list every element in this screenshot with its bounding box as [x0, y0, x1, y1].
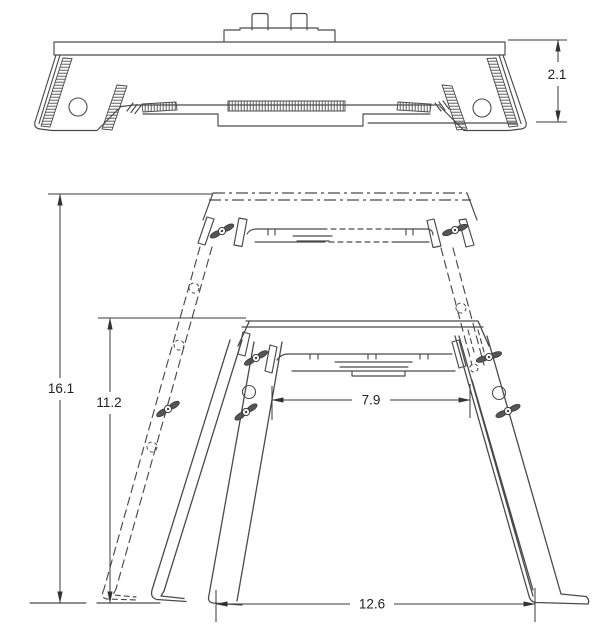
dim-label-folded-height: 2.1	[548, 67, 567, 82]
hinge-hole-right	[473, 99, 491, 117]
top-plate	[54, 42, 505, 55]
dim-label-base-span: 12.6	[359, 597, 385, 612]
top-step	[238, 321, 489, 346]
spring-mark-right	[435, 101, 449, 111]
dim-label-extended-height: 16.1	[48, 381, 74, 396]
dim-extended-height: 16.1	[48, 194, 212, 603]
technical-drawing-canvas: 2.1	[0, 0, 612, 640]
step-stool-drawing: 2.1	[0, 0, 612, 640]
lowered-position	[152, 321, 589, 605]
knurl-strip	[228, 101, 345, 111]
knurl-strip	[487, 58, 518, 127]
knurl-strip	[397, 102, 431, 112]
wing-nut-icon	[243, 348, 269, 367]
knurl-strip	[102, 85, 127, 130]
left-leg-channel	[209, 342, 283, 605]
wing-nut-icon	[441, 222, 468, 238]
phantom-top-edge	[209, 193, 471, 200]
step-bracket	[218, 114, 363, 126]
folded-profile-view: 2.1	[35, 14, 567, 131]
wing-nut-icon	[233, 401, 259, 422]
top-platform	[224, 28, 335, 42]
dim-inner-leg-span: 7.9	[272, 384, 470, 420]
dim-base-span: 12.6	[216, 588, 535, 622]
right-leg-channel	[455, 336, 589, 604]
phantom-left-leg	[104, 247, 200, 589]
lower-rail	[277, 354, 455, 376]
knurl-strip	[142, 102, 177, 112]
hinge-hole-left	[69, 98, 87, 116]
phantom-left-foot	[103, 589, 138, 600]
wing-nut-icon	[495, 402, 522, 420]
dim-label-lowered-height: 11.2	[96, 395, 121, 410]
rail-bracket-left	[238, 332, 277, 373]
side-elevation-view: 16.1 11.2 7.9 12.6	[30, 193, 589, 622]
dim-label-inner-leg-span: 7.9	[362, 393, 381, 408]
phantom-left-leg	[116, 247, 212, 589]
extended-position-phantom	[103, 193, 484, 600]
left-extension-leg	[152, 340, 242, 602]
wing-nut-icon	[475, 349, 502, 364]
